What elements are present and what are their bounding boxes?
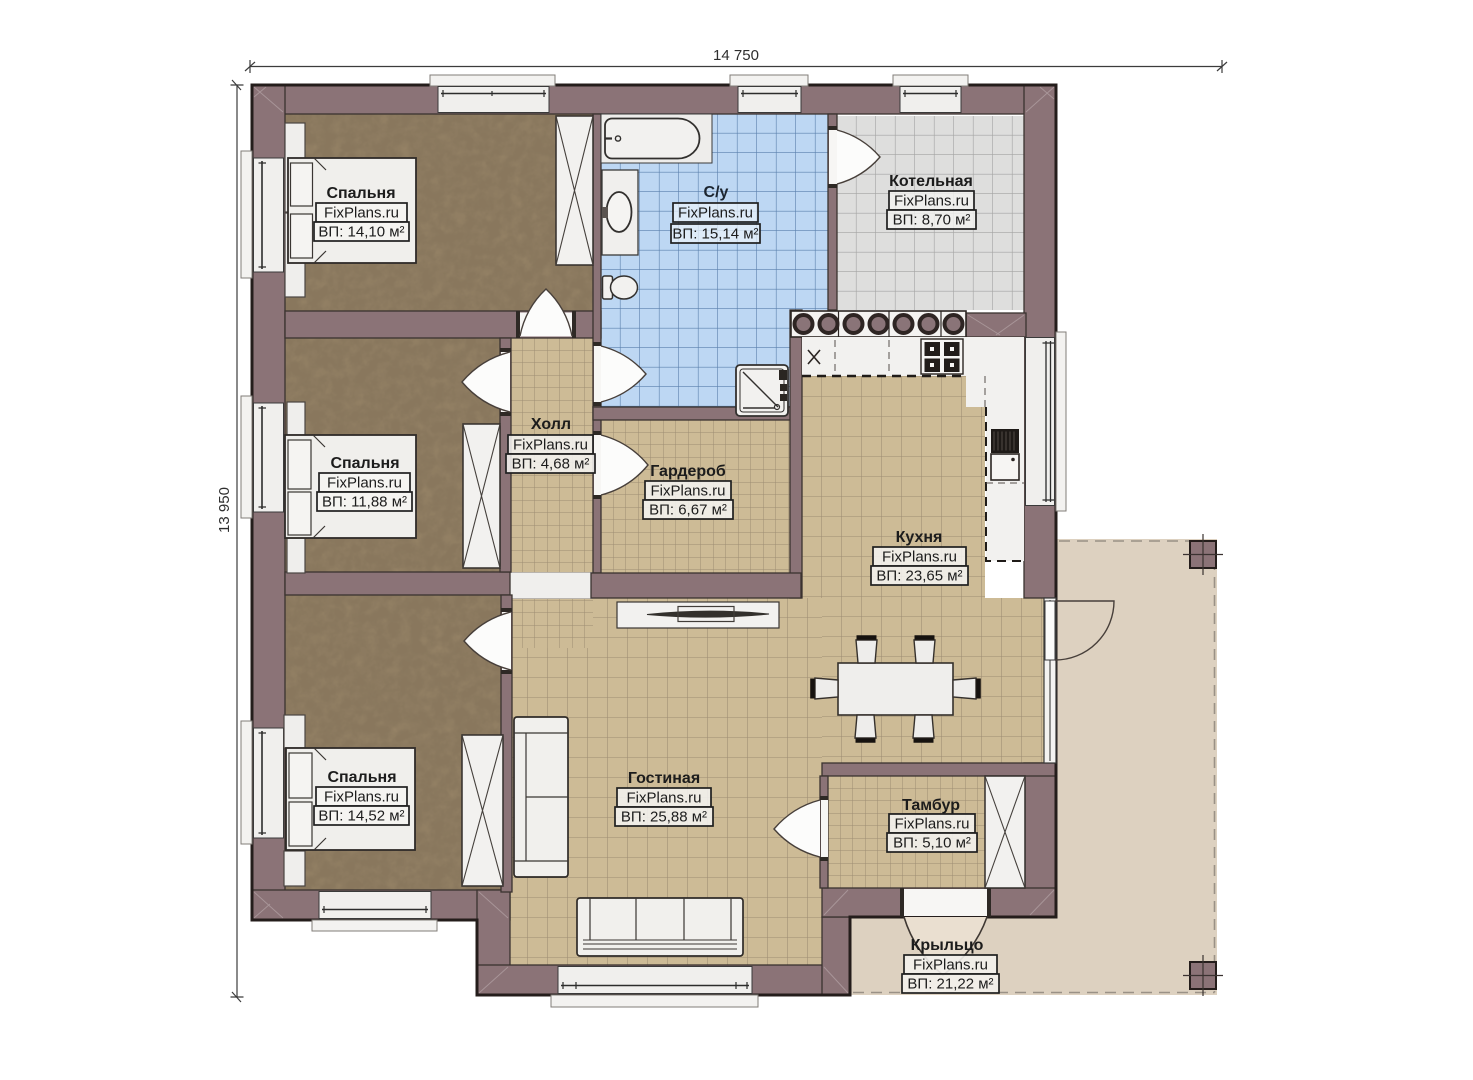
svg-text:ВП: 25,88 м²: ВП: 25,88 м² bbox=[621, 809, 707, 826]
svg-text:FixPlans.ru: FixPlans.ru bbox=[324, 789, 399, 806]
svg-text:FixPlans.ru: FixPlans.ru bbox=[626, 790, 701, 807]
svg-text:Котельная: Котельная bbox=[889, 173, 973, 190]
svg-text:FixPlans.ru: FixPlans.ru bbox=[894, 816, 969, 833]
svg-text:FixPlans.ru: FixPlans.ru bbox=[513, 437, 588, 454]
svg-text:FixPlans.ru: FixPlans.ru bbox=[882, 549, 957, 566]
svg-text:Гостиная: Гостиная bbox=[628, 770, 700, 787]
svg-text:С/у: С/у bbox=[704, 184, 729, 201]
svg-text:Спальня: Спальня bbox=[330, 455, 399, 472]
svg-text:FixPlans.ru: FixPlans.ru bbox=[894, 193, 969, 210]
svg-text:ВП: 14,52 м²: ВП: 14,52 м² bbox=[318, 808, 404, 825]
svg-text:ВП: 23,65 м²: ВП: 23,65 м² bbox=[876, 568, 962, 585]
svg-text:Гардероб: Гардероб bbox=[650, 463, 726, 480]
svg-text:Холл: Холл bbox=[531, 416, 571, 433]
svg-text:ВП: 8,70 м²: ВП: 8,70 м² bbox=[893, 212, 971, 229]
svg-text:Кухня: Кухня bbox=[896, 529, 943, 546]
svg-text:Крыльцо: Крыльцо bbox=[911, 937, 984, 954]
svg-text:FixPlans.ru: FixPlans.ru bbox=[650, 483, 725, 500]
svg-text:ВП: 4,68 м²: ВП: 4,68 м² bbox=[512, 456, 590, 473]
svg-text:Спальня: Спальня bbox=[326, 185, 395, 202]
svg-text:14 750: 14 750 bbox=[713, 47, 759, 64]
svg-text:Тамбур: Тамбур bbox=[902, 797, 960, 814]
svg-text:ВП: 14,10 м²: ВП: 14,10 м² bbox=[318, 224, 404, 241]
svg-text:13 950: 13 950 bbox=[216, 487, 233, 533]
svg-text:ВП: 6,67 м²: ВП: 6,67 м² bbox=[649, 502, 727, 519]
svg-text:ВП: 21,22 м²: ВП: 21,22 м² bbox=[907, 976, 993, 993]
svg-text:ВП: 5,10 м²: ВП: 5,10 м² bbox=[893, 835, 971, 852]
svg-text:FixPlans.ru: FixPlans.ru bbox=[678, 205, 753, 222]
svg-text:FixPlans.ru: FixPlans.ru bbox=[913, 957, 988, 974]
svg-text:Спальня: Спальня bbox=[327, 769, 396, 786]
svg-text:ВП: 11,88 м²: ВП: 11,88 м² bbox=[322, 494, 407, 511]
svg-text:FixPlans.ru: FixPlans.ru bbox=[324, 205, 399, 222]
svg-text:FixPlans.ru: FixPlans.ru bbox=[327, 475, 402, 492]
svg-text:ВП: 15,14 м²: ВП: 15,14 м² bbox=[672, 226, 758, 243]
